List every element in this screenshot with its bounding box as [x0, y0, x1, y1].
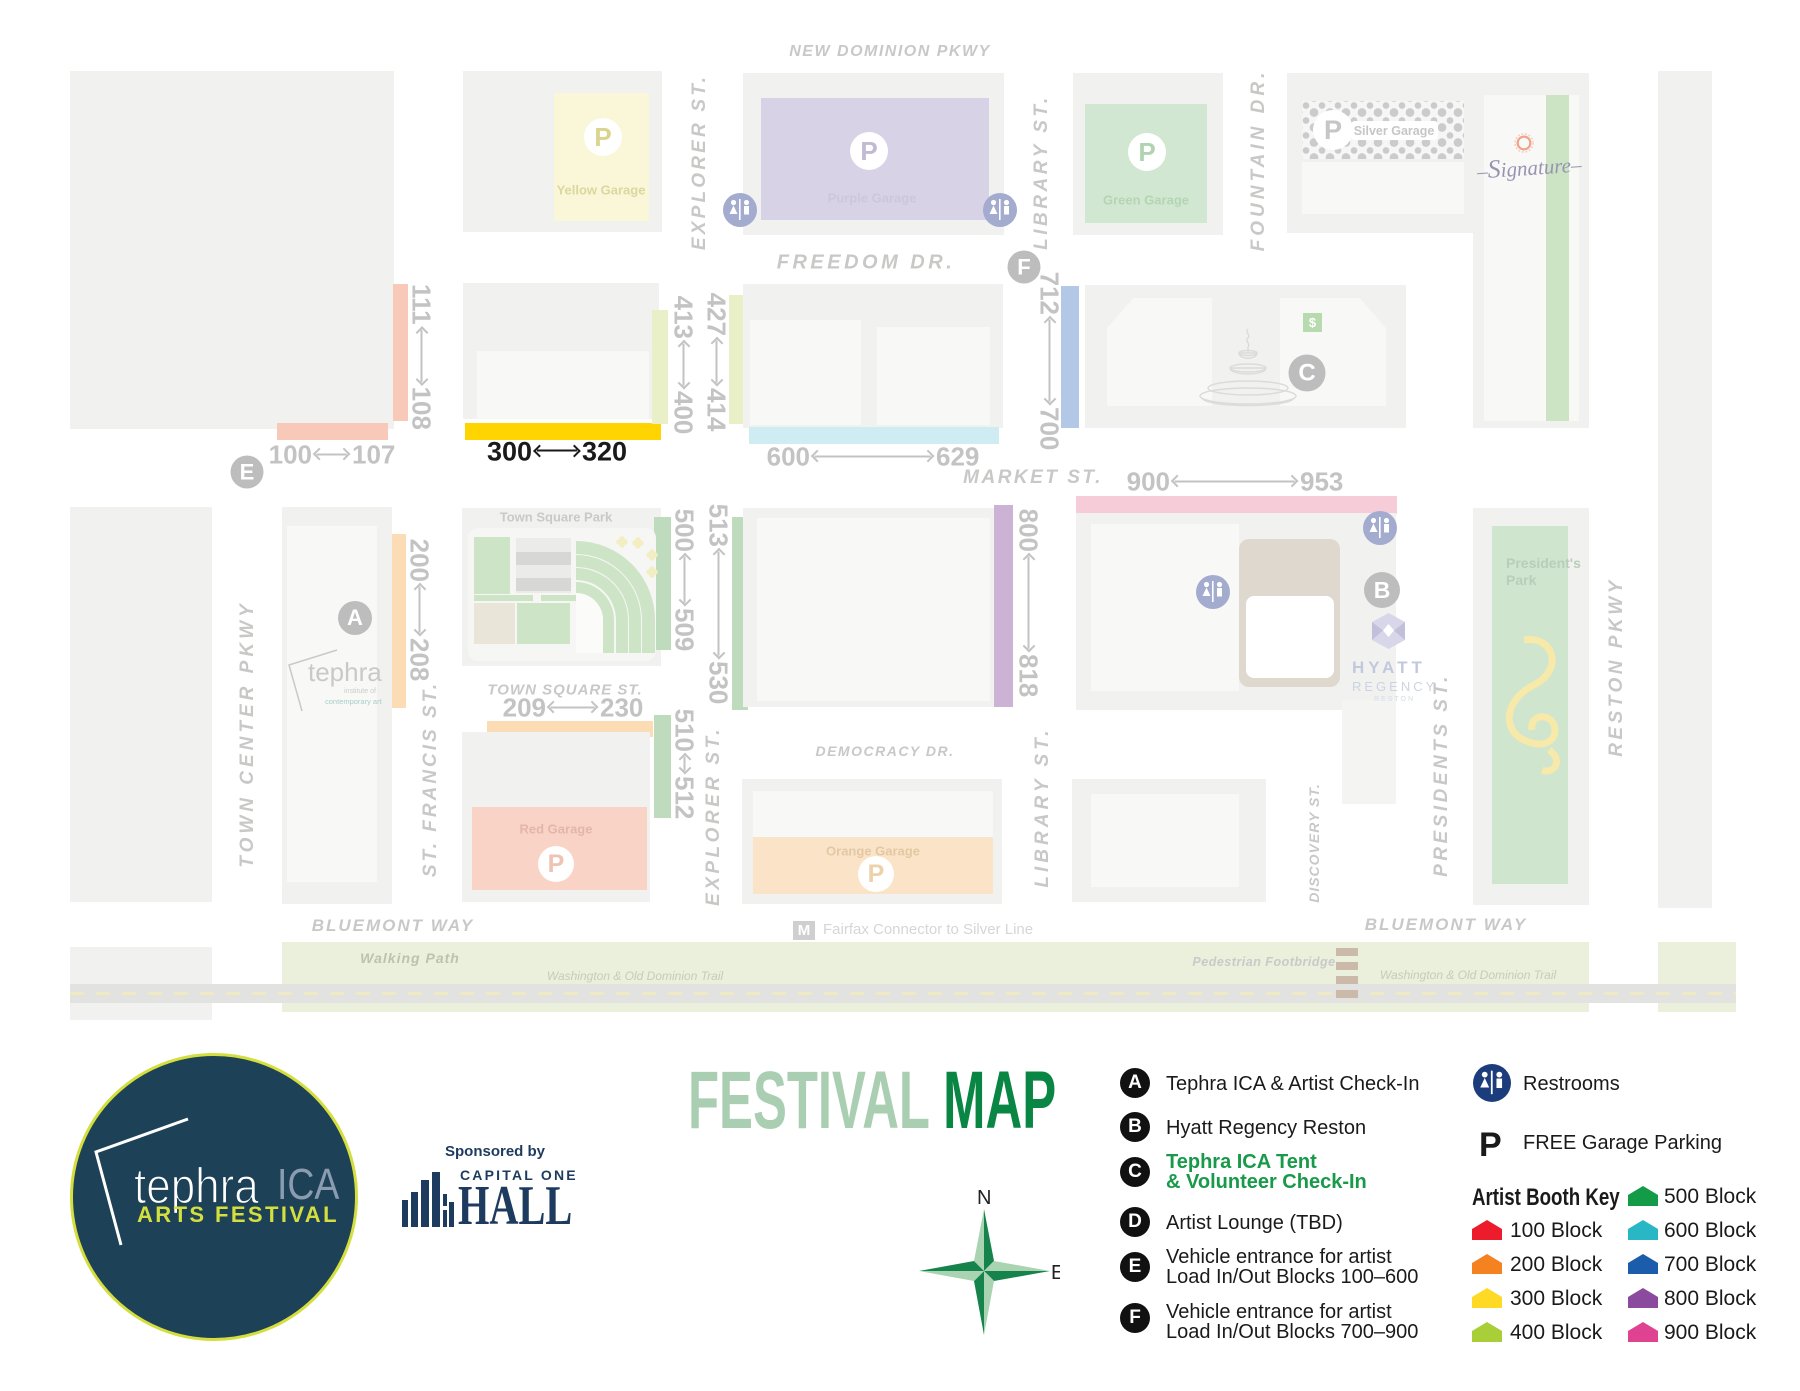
- svg-text:E: E: [1051, 1262, 1060, 1284]
- svg-text:N: N: [977, 1187, 991, 1209]
